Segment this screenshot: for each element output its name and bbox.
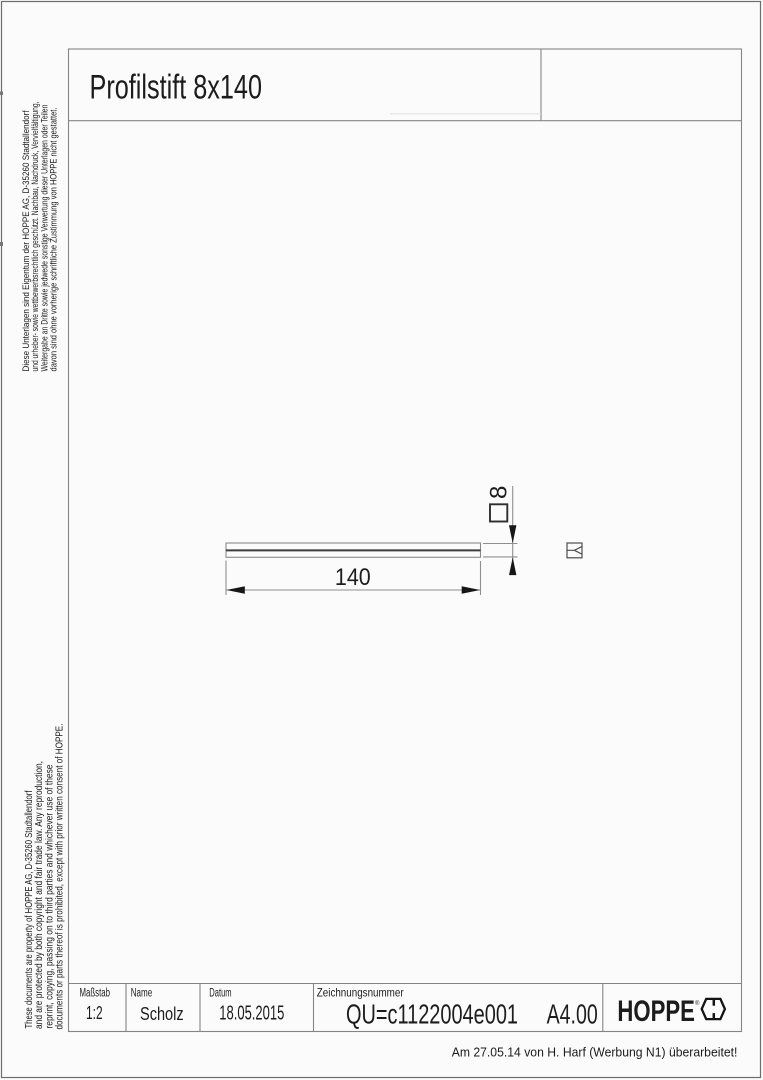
svg-text:®: ® [695,1000,700,1007]
svg-text:Scholz: Scholz [140,1004,184,1024]
svg-text:QU=c1122004e001: QU=c1122004e001 [346,998,518,1029]
svg-text:HOPPE: HOPPE [617,995,695,1028]
svg-text:1:2: 1:2 [86,1003,103,1023]
svg-text:Profilstift 8x140: Profilstift 8x140 [90,69,263,107]
svg-text:Maßstab: Maßstab [80,988,111,1000]
svg-text:documents or parts thereof is: documents or parts thereof is prohibited… [55,724,66,1030]
svg-text:18.05.2015: 18.05.2015 [219,1002,284,1024]
svg-text:Am 27.05.14 von H. Harf (Werbu: Am 27.05.14 von H. Harf (Werbung N1) übe… [452,1045,738,1060]
svg-text:Name: Name [131,988,153,1000]
svg-text:Datum: Datum [209,988,231,1000]
svg-text:davon sind ohne vorherige schr: davon sind ohne vorherige schriftliche Z… [49,107,60,371]
svg-text:8: 8 [486,486,513,499]
svg-text:A4.00: A4.00 [547,999,598,1030]
svg-text:140: 140 [335,564,371,591]
